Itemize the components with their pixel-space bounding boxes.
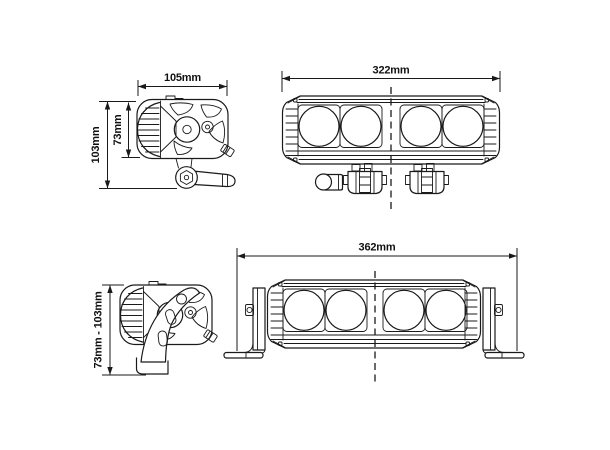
view-pod-side-bottom: 73mm - 103mm — [93, 282, 218, 376]
dim-362mm-label: 362mm — [359, 242, 396, 254]
pod-slide-bracket — [137, 288, 200, 374]
pod-bracket-drawing — [120, 282, 218, 375]
pod-screw-dot — [206, 125, 210, 129]
lens — [443, 106, 483, 146]
bar-362-drawing — [224, 271, 524, 384]
bar-pedestal-right — [406, 164, 449, 194]
pod-screw — [185, 307, 196, 318]
dim-73-103mm-label: 73mm - 103mm — [93, 291, 105, 369]
pod-lens-bezel — [138, 101, 161, 158]
bar-cable-gland — [316, 174, 343, 190]
bracket-foot — [224, 353, 263, 359]
dimension-drawing-canvas: 105mm 103mm 73mm — [0, 0, 610, 450]
dim-322mm-label: 322mm — [373, 65, 410, 77]
pod-pivot-circle — [174, 117, 199, 142]
lens — [299, 106, 339, 146]
pod-reflector-cone — [161, 106, 177, 152]
dim-103mm-label: 103mm — [90, 126, 102, 163]
dim-73mm: 73mm — [112, 103, 140, 158]
technical-drawing: 105mm 103mm 73mm — [0, 0, 610, 450]
pod-pivot-dot — [183, 125, 191, 133]
view-bar-322: 322mm — [282, 65, 500, 214]
bar-side-bracket-left — [224, 288, 265, 358]
pod-screw-dot — [189, 311, 193, 315]
pod-housing-cutouts — [170, 103, 225, 155]
pod-side-drawing — [137, 96, 235, 188]
bar-pedestal-left — [344, 164, 387, 194]
dim-105mm-label: 105mm — [164, 72, 201, 84]
dim-73-103mm: 73mm - 103mm — [93, 285, 147, 375]
lens — [401, 106, 441, 146]
bracket-foot — [485, 353, 524, 359]
view-bar-362: 362mm — [224, 242, 524, 385]
lens — [341, 106, 381, 146]
pod-mount-boss — [176, 167, 198, 189]
pod-cable-gland-arm — [193, 171, 235, 187]
dim-105mm: 105mm — [138, 72, 227, 96]
dim-103mm: 103mm — [90, 102, 177, 189]
pod-screw — [202, 121, 213, 132]
bar-322-drawing — [283, 87, 500, 213]
bar-side-bracket-right — [483, 288, 524, 358]
dim-73mm-label: 73mm — [112, 114, 124, 145]
pod-lens-bezel — [121, 287, 144, 344]
view-pod-side-top: 105mm 103mm 73mm — [90, 72, 235, 189]
